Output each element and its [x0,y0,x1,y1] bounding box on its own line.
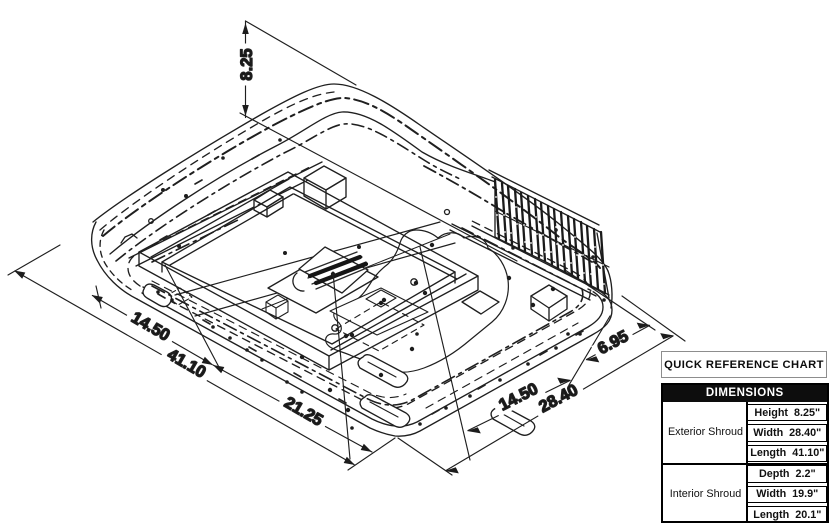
svg-text:8.25: 8.25 [238,48,256,80]
svg-text:21.25: 21.25 [281,394,326,430]
svg-text:41.10: 41.10 [164,346,209,382]
